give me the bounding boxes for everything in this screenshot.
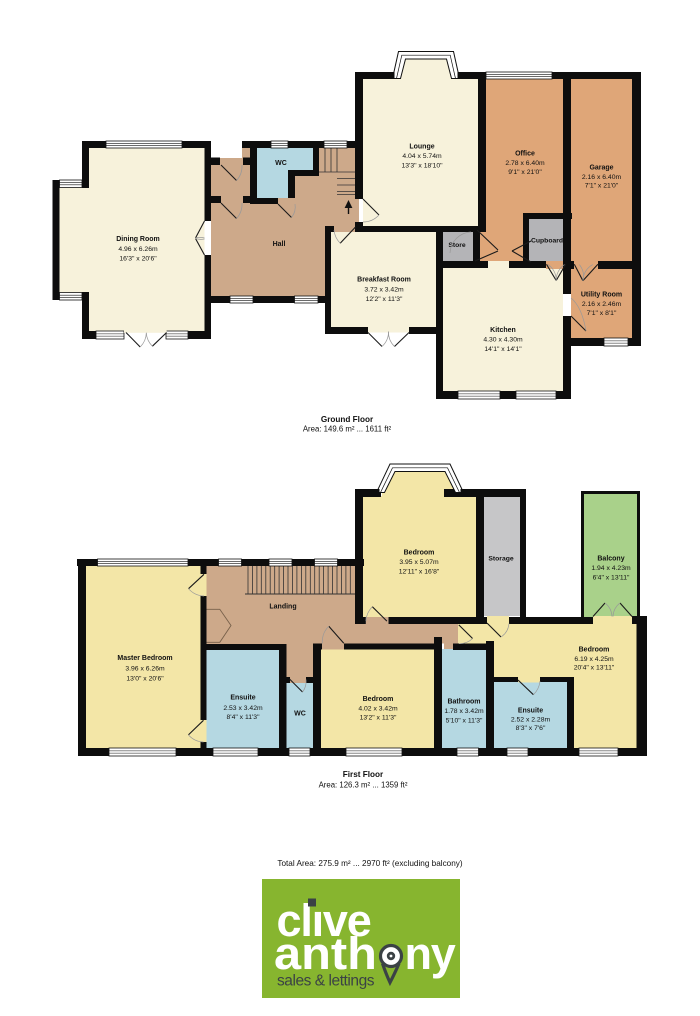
svg-text:20'4" x 13'11": 20'4" x 13'11" — [574, 665, 615, 672]
svg-text:7'1" x 21'0": 7'1" x 21'0" — [585, 183, 619, 190]
svg-text:6'4" x 13'11": 6'4" x 13'11" — [593, 575, 630, 582]
svg-text:13'0" x 20'6": 13'0" x 20'6" — [126, 676, 164, 683]
svg-text:Ensuite: Ensuite — [518, 708, 543, 715]
svg-text:14'1" x 14'1": 14'1" x 14'1" — [484, 346, 522, 353]
svg-text:4.02 x 3.42m: 4.02 x 3.42m — [358, 705, 398, 712]
svg-text:7'1" x 8'1": 7'1" x 8'1" — [587, 310, 617, 317]
svg-text:9'1" x 21'0": 9'1" x 21'0" — [508, 169, 542, 176]
svg-text:2.16 x 2.46m: 2.16 x 2.46m — [582, 301, 622, 308]
svg-text:16'3" x 20'6": 16'3" x 20'6" — [119, 256, 157, 263]
svg-text:Cupboard: Cupboard — [531, 238, 563, 245]
svg-text:2.78 x 6.40m: 2.78 x 6.40m — [505, 160, 545, 167]
svg-text:3.95 x 5.07m: 3.95 x 5.07m — [399, 559, 439, 566]
svg-text:12'2" x 11'3": 12'2" x 11'3" — [366, 296, 403, 303]
svg-text:Master Bedroom: Master Bedroom — [117, 655, 172, 662]
svg-text:Breakfast Room: Breakfast Room — [357, 277, 411, 284]
svg-text:4.30 x 4.30m: 4.30 x 4.30m — [483, 337, 523, 344]
svg-text:13'3" x 18'10": 13'3" x 18'10" — [401, 163, 443, 170]
svg-text:WC: WC — [275, 160, 287, 167]
svg-text:8'3" x 7'6": 8'3" x 7'6" — [516, 725, 546, 732]
svg-text:Lounge: Lounge — [409, 144, 434, 151]
svg-text:Bedroom: Bedroom — [579, 647, 610, 654]
svg-text:Office: Office — [515, 151, 535, 158]
svg-text:1.94 x 4.23m: 1.94 x 4.23m — [591, 565, 631, 572]
svg-text:First Floor: First Floor — [343, 770, 384, 779]
svg-text:Balcony: Balcony — [597, 556, 624, 563]
svg-text:3.72 x 3.42m: 3.72 x 3.42m — [364, 287, 404, 294]
svg-text:WC: WC — [294, 711, 306, 718]
svg-text:sales & lettings: sales & lettings — [277, 973, 375, 990]
svg-text:2.16 x 6.40m: 2.16 x 6.40m — [582, 174, 622, 181]
svg-text:Bedroom: Bedroom — [404, 550, 435, 557]
svg-text:Landing: Landing — [269, 604, 296, 611]
svg-text:Bedroom: Bedroom — [363, 696, 394, 703]
svg-text:ny: ny — [405, 928, 456, 979]
svg-text:Storage: Storage — [488, 556, 514, 563]
svg-text:2.53 x 3.42m: 2.53 x 3.42m — [223, 705, 263, 712]
svg-text:Utility Room: Utility Room — [581, 292, 622, 299]
svg-text:3.96 x 6.26m: 3.96 x 6.26m — [125, 666, 165, 673]
svg-text:5'10" x 11'3": 5'10" x 11'3" — [446, 718, 483, 725]
svg-text:Total Area: 275.9 m² ... 2970: Total Area: 275.9 m² ... 2970 ft² (exclu… — [277, 859, 462, 868]
svg-text:2.52 x 2.28m: 2.52 x 2.28m — [511, 717, 551, 724]
svg-text:4.04 x 5.74m: 4.04 x 5.74m — [402, 153, 442, 160]
svg-text:4.96 x 6.26m: 4.96 x 6.26m — [118, 246, 158, 253]
svg-text:Bathroom: Bathroom — [447, 699, 480, 706]
svg-text:13'2" x 11'3": 13'2" x 11'3" — [360, 715, 397, 722]
svg-text:Hall: Hall — [273, 241, 286, 248]
svg-text:12'11" x 16'8": 12'11" x 16'8" — [399, 569, 440, 576]
svg-text:Ensuite: Ensuite — [230, 695, 255, 702]
svg-text:Area: 126.3 m² ... 1359 ft²: Area: 126.3 m² ... 1359 ft² — [319, 781, 408, 790]
svg-text:Area: 149.6 m² ... 1611 ft²: Area: 149.6 m² ... 1611 ft² — [303, 425, 392, 434]
svg-text:Kitchen: Kitchen — [490, 327, 516, 334]
svg-text:Ground Floor: Ground Floor — [321, 415, 374, 424]
svg-text:8'4" x 11'3": 8'4" x 11'3" — [227, 714, 261, 721]
svg-text:Dining Room: Dining Room — [116, 236, 160, 243]
svg-text:6.19 x 4.25m: 6.19 x 4.25m — [574, 656, 614, 663]
svg-text:1.78 x 3.42m: 1.78 x 3.42m — [444, 708, 484, 715]
svg-text:Garage: Garage — [589, 165, 613, 172]
svg-text:anth: anth — [274, 928, 377, 979]
